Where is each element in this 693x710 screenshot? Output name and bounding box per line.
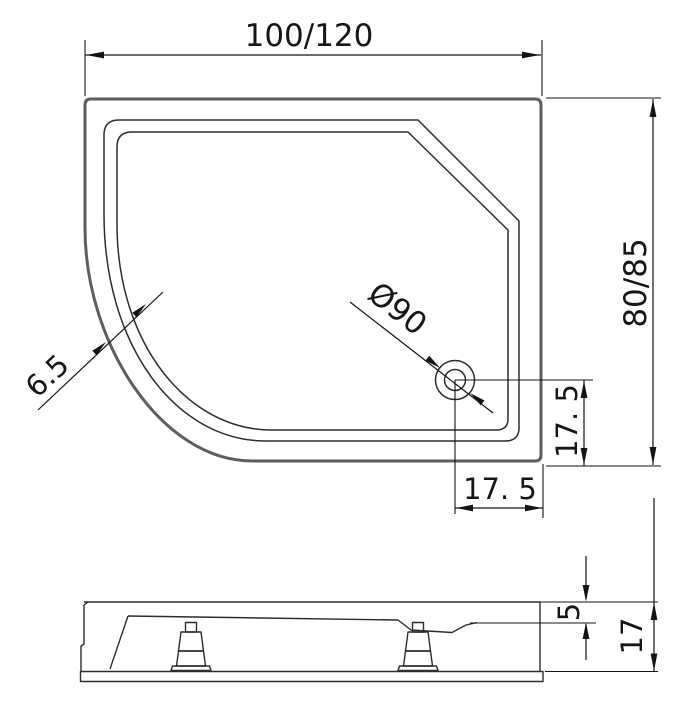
arrowhead-down-icon — [651, 654, 658, 672]
side-view — [81, 602, 544, 682]
foot-tier-lower — [404, 651, 433, 666]
arrowhead-down-icon — [583, 585, 590, 602]
adjustable-foot-left — [171, 623, 211, 671]
side-skirt-diagonal — [110, 616, 128, 669]
foot-base — [171, 666, 211, 671]
side-base-plate — [81, 672, 544, 682]
offset-v-dimension-label: 17. 5 — [550, 384, 584, 458]
technical-drawing-canvas: 100/120 80/85 Ø90 6.5 17. 5 17 — [0, 0, 693, 710]
top-view — [85, 99, 541, 461]
drain-dimension-label: Ø90 — [361, 275, 433, 343]
shower-tray-technical-drawing: 100/120 80/85 Ø90 6.5 17. 5 17 — [0, 0, 693, 710]
dim-total-height: 17 — [545, 498, 658, 672]
arrowhead-right-icon — [522, 52, 540, 59]
depth-dimension-label: 80/85 — [618, 238, 654, 327]
dim-rim-width: 6.5 — [19, 292, 163, 410]
rim-dimension-label: 6.5 — [19, 348, 76, 404]
tray-basin-edge — [117, 132, 508, 430]
arrowhead-rim-outer-icon — [92, 342, 106, 355]
arrowhead-up-icon — [650, 100, 657, 118]
arrowhead-drain-lower-icon — [470, 393, 485, 405]
offset-h-dimension-label: 17. 5 — [463, 472, 537, 506]
lip-dimension-label: 5 — [552, 603, 586, 621]
tray-rim-inner-edge — [104, 120, 519, 441]
foot-stem — [186, 623, 197, 633]
dim-drain-diameter: Ø90 — [350, 275, 493, 413]
dim-drain-offset-vertical: 17. 5 — [455, 380, 593, 466]
foot-tier-upper — [406, 632, 431, 651]
tray-outer-outline — [85, 99, 541, 461]
arrowhead-down-icon — [650, 447, 657, 465]
adjustable-foot-right — [398, 623, 438, 671]
height-dimension-label: 17 — [615, 618, 649, 655]
dim-width: 100/120 — [85, 18, 542, 96]
foot-tier-upper — [179, 632, 204, 651]
foot-base — [398, 666, 438, 671]
rim-leader-line — [38, 292, 163, 410]
arrowhead-left-icon — [86, 52, 104, 59]
side-tray-underside — [128, 616, 477, 633]
dim-drain-offset-horizontal: 17. 5 — [455, 380, 543, 518]
arrowhead-up-icon — [651, 603, 658, 621]
width-dimension-label: 100/120 — [245, 18, 374, 54]
side-left-edge — [81, 602, 88, 672]
arrowhead-up-icon — [583, 623, 590, 640]
foot-tier-lower — [177, 651, 206, 666]
